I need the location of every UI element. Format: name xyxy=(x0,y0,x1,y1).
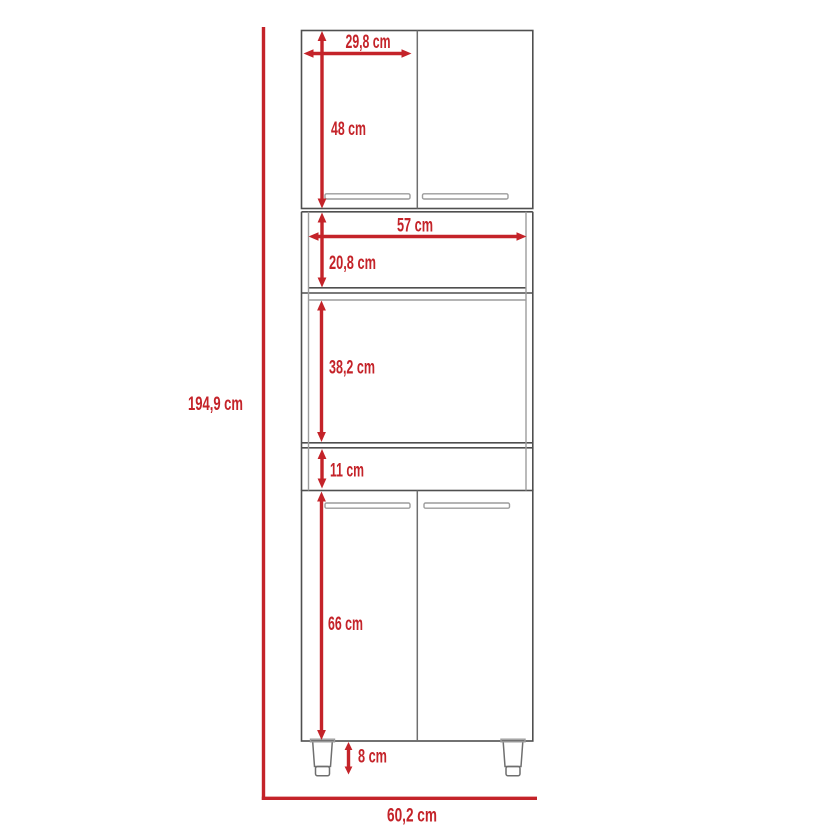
arrowhead-left xyxy=(309,232,319,241)
left-leg-body xyxy=(313,742,333,767)
dim-upper-section-height: 48 cm xyxy=(318,31,366,209)
arrowhead-right xyxy=(517,232,527,241)
dim-leg-height: 8 cm xyxy=(345,742,387,775)
dimension-annotations: 194,9 cm 60,2 cm 29,8 cm 48 cm 57 cm xyxy=(188,27,537,827)
arrowhead-up xyxy=(318,31,327,41)
dim-label-interior-width: 57 cm xyxy=(397,216,433,237)
arrowhead-down xyxy=(318,278,327,288)
diagram-canvas: 194,9 cm 60,2 cm 29,8 cm 48 cm 57 cm xyxy=(0,0,840,840)
dim-label-lower-shelf-height: 11 cm xyxy=(330,461,364,482)
left-leg-foot xyxy=(316,767,330,776)
dim-lower-section-height: 66 cm xyxy=(317,492,363,741)
arrowhead-up xyxy=(318,213,327,223)
dim-lower-shelf-height: 11 cm xyxy=(318,449,364,489)
dim-middle-opening-height: 38,2 cm xyxy=(317,301,375,443)
dim-interior-width: 57 cm xyxy=(309,216,527,241)
dim-label-leg-height: 8 cm xyxy=(358,747,387,768)
right-leg-body xyxy=(503,742,523,767)
arrowhead-up xyxy=(317,492,326,502)
arrowhead-down xyxy=(345,767,353,775)
dim-label-upper-section-height: 48 cm xyxy=(331,119,366,140)
dim-door-width: 29,8 cm xyxy=(304,32,412,58)
arrowhead-down xyxy=(318,199,327,209)
lower-right-door-handle xyxy=(424,503,510,508)
upper-right-door-handle xyxy=(423,194,509,199)
arrowhead-up xyxy=(317,301,326,311)
lower-left-door-handle xyxy=(325,503,410,508)
arrowhead-down xyxy=(317,432,326,442)
dim-label-door-width: 29,8 cm xyxy=(346,32,391,53)
arrowhead-down xyxy=(318,479,327,489)
arrowhead-up xyxy=(318,449,327,459)
dim-upper-shelf-height: 20,8 cm xyxy=(318,213,376,288)
upper-left-door-handle xyxy=(325,194,410,199)
right-leg-foot xyxy=(506,767,520,776)
dim-label-middle-opening-height: 38,2 cm xyxy=(329,358,375,379)
dim-label-upper-shelf-height: 20,8 cm xyxy=(329,253,376,274)
dim-label-lower-section-height: 66 cm xyxy=(328,614,363,635)
dim-overall-width: 60,2 cm xyxy=(262,798,537,826)
arrowhead-left xyxy=(304,49,314,58)
dim-overall-height: 194,9 cm xyxy=(188,27,264,800)
dim-label-overall-width: 60,2 cm xyxy=(387,806,437,827)
arrowhead-up xyxy=(345,742,353,750)
cabinet-dimension-diagram: 194,9 cm 60,2 cm 29,8 cm 48 cm 57 cm xyxy=(0,0,840,840)
cabinet-outline-mid xyxy=(313,31,523,776)
arrowhead-right xyxy=(402,49,412,58)
dim-label-overall-height: 194,9 cm xyxy=(188,394,243,415)
